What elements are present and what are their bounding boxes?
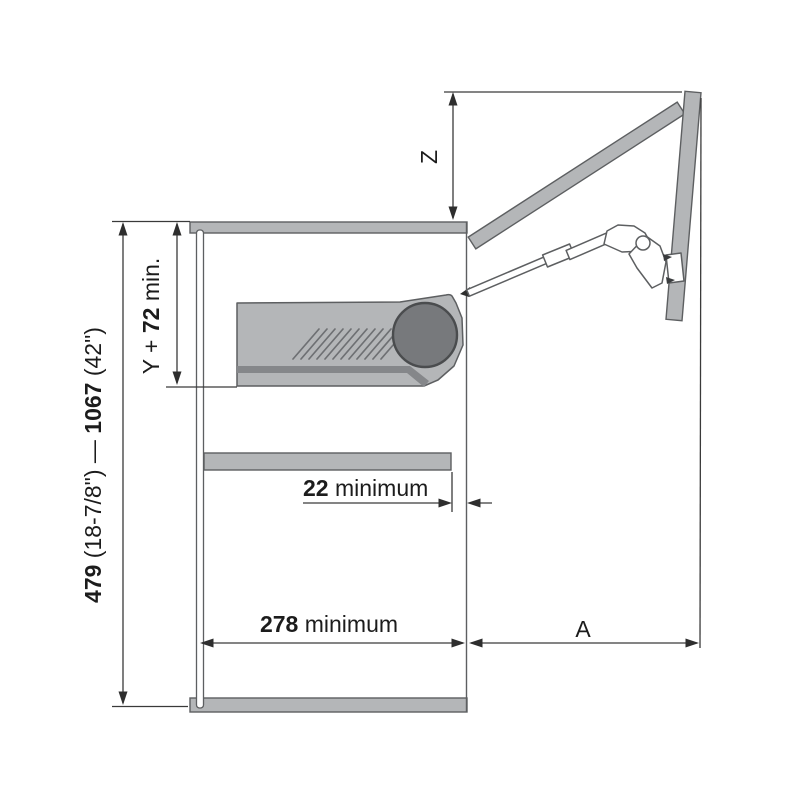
bi-fold-doors <box>468 91 701 648</box>
lift-fitting-installation-diagram: 479 (18-7/8") — 1067 (42") Y + 72 min. Z… <box>0 0 800 800</box>
upper-door-panel <box>468 102 685 249</box>
dim-shelf-setback-22: 22 minimum <box>303 472 492 512</box>
lift-mechanism <box>237 295 463 387</box>
cabinet-back-panel <box>197 230 204 708</box>
shelf-setback-label: 22 minimum <box>303 475 428 501</box>
depth-label: 278 minimum <box>260 611 398 637</box>
arrow-left <box>467 499 481 508</box>
cabinet-bottom-panel <box>190 698 467 712</box>
cabinet-top-panel <box>190 222 467 233</box>
cabinet <box>190 222 467 712</box>
lower-door-panel <box>666 91 701 320</box>
arrow-up <box>449 92 458 106</box>
arrow-right <box>439 499 453 508</box>
z-label: Z <box>416 150 442 164</box>
arrow-left <box>469 639 483 648</box>
arrow-up <box>173 222 182 236</box>
door-edge-reference-line <box>700 98 701 648</box>
arrow-up <box>119 222 128 236</box>
inner-height-label: Y + 72 min. <box>138 258 164 375</box>
dim-y-plus-72: Y + 72 min. <box>138 222 237 387</box>
arrow-right <box>452 639 466 648</box>
arrow-down <box>449 207 458 221</box>
dim-front-a: A <box>469 616 699 648</box>
winding-drum <box>393 303 457 367</box>
arrow-down <box>173 372 182 386</box>
dim-depth-278: 278 minimum <box>200 611 465 648</box>
dim-cabinet-height: 479 (18-7/8") — 1067 (42") <box>80 222 190 707</box>
height-range-label: 479 (18-7/8") — 1067 (42") <box>80 327 106 603</box>
arrow-right <box>686 639 700 648</box>
front-clearance-label: A <box>575 616 591 642</box>
arrow-down <box>119 692 128 706</box>
pivot-circle <box>636 236 650 250</box>
shelf <box>204 453 451 470</box>
